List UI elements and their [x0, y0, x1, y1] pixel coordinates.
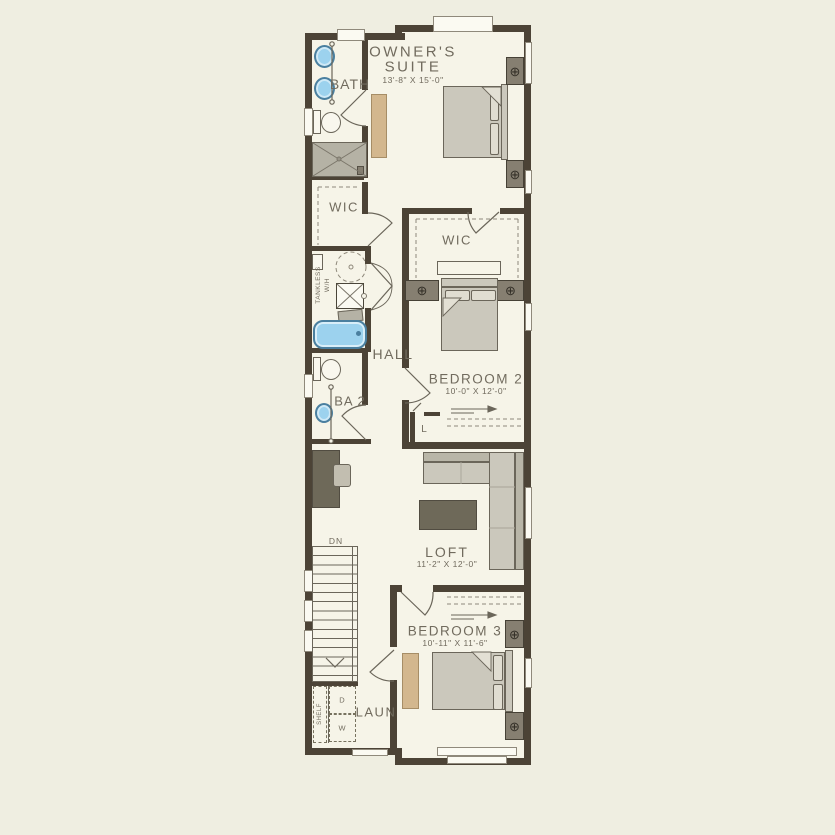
wall: [365, 246, 371, 264]
tub-faucet: [356, 331, 361, 336]
window: [433, 16, 493, 32]
wall: [305, 246, 366, 251]
room-label-owners-suite: SUITE: [385, 60, 442, 75]
nightstand: ⊕: [506, 57, 524, 85]
wall: [402, 442, 531, 449]
wall: [395, 748, 402, 765]
room-label-wic-bedroom2: WIC: [442, 234, 472, 247]
toilet-bowl: [321, 359, 341, 380]
wall: [410, 412, 415, 446]
room-label-bedroom2: BEDROOM 2: [429, 372, 524, 386]
wall: [390, 585, 397, 647]
sofa-back: [515, 452, 524, 570]
window: [352, 749, 388, 756]
nightstand: ⊕: [405, 280, 439, 301]
desk-chair: [333, 464, 351, 487]
wall: [305, 439, 371, 444]
pillow: [490, 123, 499, 155]
pillow: [445, 290, 470, 301]
window: [525, 303, 532, 331]
room-label-wic-owners: WIC: [329, 201, 359, 214]
tankless-water-heater: [336, 283, 364, 309]
floor-plan: ⊕ ⊕ ⊕ ⊕ ⊕ ⊕: [0, 0, 835, 835]
wall: [500, 208, 531, 214]
room-label-hall: HALL: [372, 347, 413, 361]
window: [525, 658, 532, 688]
headboard: [441, 278, 498, 287]
coffee-table: [419, 500, 477, 530]
wall: [433, 585, 531, 592]
room-label-laundry: LAUN: [356, 706, 397, 719]
room-dims-bedroom3: 10'-11" X 11'-6": [422, 639, 487, 648]
room-label-loft: LOFT: [425, 545, 469, 559]
window: [304, 108, 313, 136]
wall: [362, 182, 368, 214]
toilet-tank: [313, 357, 321, 381]
pillow: [493, 684, 503, 710]
dryer-label: D: [339, 696, 344, 704]
lamp-icon: ⊕: [510, 168, 521, 181]
headboard: [505, 650, 513, 712]
window: [525, 487, 532, 539]
headboard: [501, 84, 508, 160]
shower-drain: [357, 166, 364, 175]
sofa-seat: [489, 452, 515, 570]
lamp-icon: ⊕: [509, 720, 520, 733]
pillow: [493, 655, 503, 681]
window: [525, 170, 532, 194]
pillow: [471, 290, 496, 301]
lamp-icon: ⊕: [417, 284, 428, 297]
nightstand: ⊕: [505, 712, 524, 740]
nightstand: ⊕: [506, 160, 524, 188]
wall: [524, 25, 531, 765]
stair-rail: [352, 546, 354, 682]
bathroom-sink: [315, 403, 333, 423]
dresser: [402, 653, 419, 709]
window: [525, 42, 532, 84]
wall: [402, 208, 472, 214]
nightstand: ⊕: [505, 620, 524, 648]
room-label-bedroom3: BEDROOM 3: [408, 624, 503, 638]
wall: [424, 412, 440, 416]
room-label-bath: BATH: [330, 77, 370, 91]
tankless-wh-label: TANKLESS: [316, 266, 323, 303]
lamp-icon: ⊕: [505, 284, 516, 297]
pillow: [490, 89, 499, 121]
bathroom-sink: [314, 45, 335, 68]
stairs-direction-label: DN: [329, 537, 343, 546]
window: [447, 756, 507, 764]
lamp-icon: ⊕: [509, 628, 520, 641]
dresser: [371, 94, 387, 158]
window: [337, 29, 365, 41]
nightstand: ⊕: [497, 280, 524, 301]
shelf-label: SHELF: [317, 703, 323, 725]
tankless-wh-label: W/H: [325, 278, 332, 292]
room-dims-loft: 11'-2" X 12'-0": [417, 560, 478, 569]
toilet-tank: [313, 110, 321, 134]
window: [437, 747, 517, 756]
room-label-linen: L: [421, 425, 427, 435]
room-dims-owners-suite: 13'-8" X 15'-0": [382, 76, 443, 85]
window: [304, 374, 313, 398]
toilet-bowl: [321, 112, 341, 133]
room-label-ba2: BA 2: [334, 395, 365, 408]
wall: [395, 25, 402, 40]
room-label-owners-suite: OWNER'S: [369, 45, 457, 60]
washer-label: W: [338, 724, 345, 732]
closet-shelf: [437, 261, 501, 275]
room-dims-bedroom2: 10'-0" X 12'-0": [445, 387, 506, 396]
lamp-icon: ⊕: [510, 65, 521, 78]
